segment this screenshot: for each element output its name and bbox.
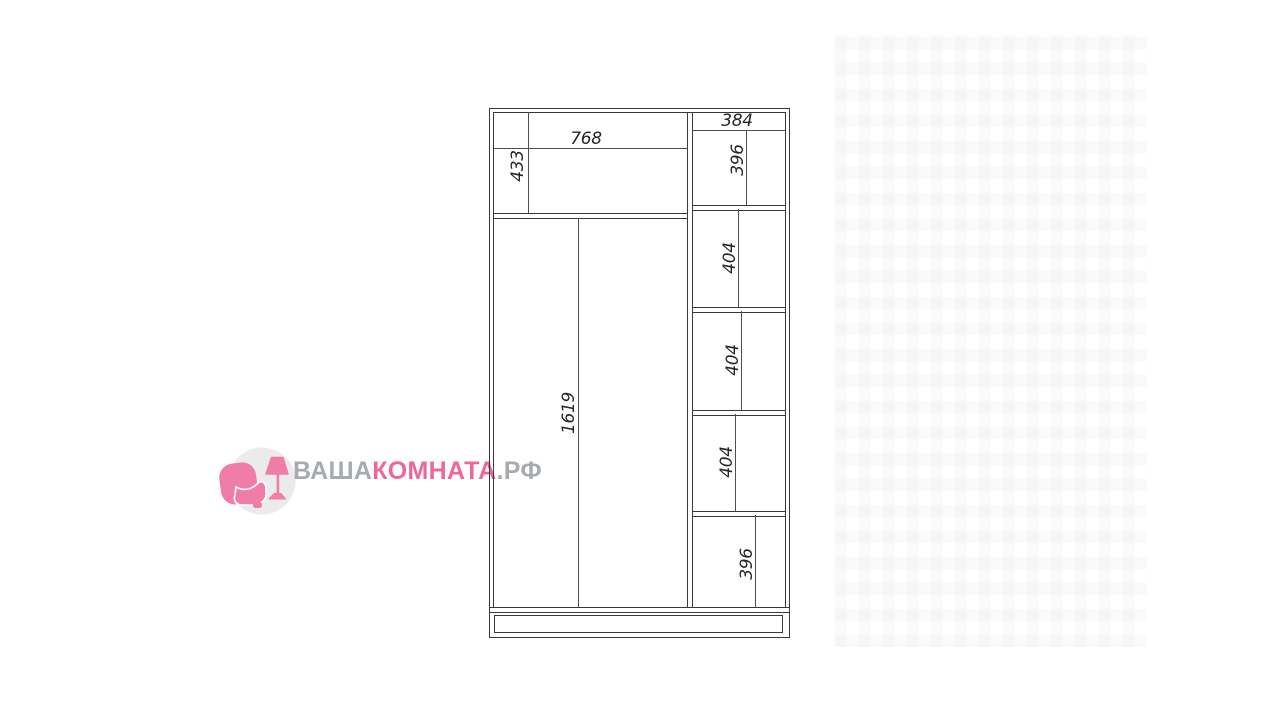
right-shelf-4 [692, 511, 785, 512]
dim-label-396-top: 396 [729, 130, 747, 190]
dim-label-404-2: 404 [724, 330, 742, 390]
dim-label-384: 384 [697, 112, 777, 130]
left-shelf [493, 218, 687, 219]
middle-divider [687, 112, 688, 607]
background-watermark-pattern [835, 35, 1147, 647]
dim-label-768: 768 [546, 130, 626, 148]
right-shelf-3 [692, 410, 785, 411]
dim-label-404-1: 404 [721, 228, 739, 288]
dim-label-1619: 1619 [560, 383, 578, 443]
brand-logo-icon [216, 446, 302, 520]
right-shelf-2 [692, 307, 785, 308]
left-shelf [493, 213, 687, 214]
right-shelf-2 [692, 312, 785, 313]
right-shelf-4 [692, 516, 785, 517]
dim-label-404-3: 404 [718, 432, 736, 492]
dim-label-433: 433 [509, 136, 527, 196]
dim-line-433 [528, 112, 529, 213]
brand-name-part2: КОМНАТА [372, 457, 496, 485]
bottom-shelf [489, 607, 790, 608]
dim-label-396-bottom: 396 [738, 534, 756, 594]
page: ВАШАКОМНАТА.РФ [0, 0, 1280, 720]
brand-name-part1: ВАША [293, 457, 372, 485]
wardrobe-drawing: 768 433 1619 384 396 404 404 404 396 [489, 108, 790, 638]
plinth-panel [494, 615, 783, 633]
middle-divider [692, 112, 693, 607]
bottom-shelf [489, 612, 790, 613]
wall-left-inner [493, 112, 494, 607]
right-shelf-3 [692, 415, 785, 416]
right-shelf-1 [692, 205, 785, 206]
wall-right-inner [785, 112, 786, 607]
